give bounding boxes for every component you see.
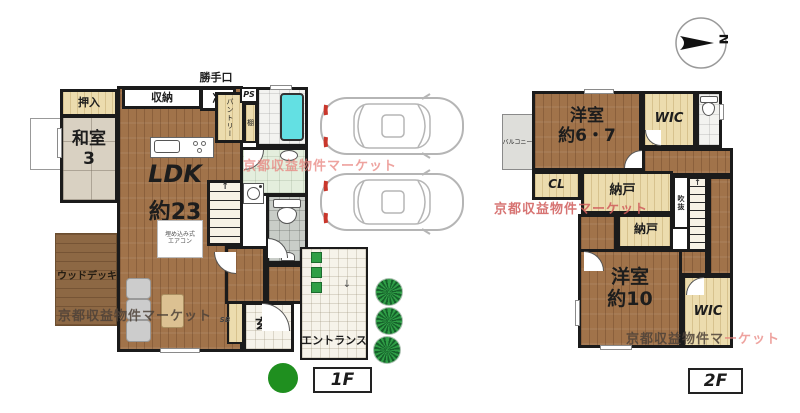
watermark-part: ーケット	[724, 332, 780, 347]
floor2-label: 2F	[704, 371, 727, 391]
floor-plan-canvas: 勝手口 LDK 約23 収納 冷 埋め込み式 エアコン 押入 和室 3 パントリ…	[0, 0, 800, 413]
car-icon	[318, 166, 466, 238]
shrub-icon	[376, 279, 402, 305]
window	[160, 348, 200, 353]
watermark: 京都収益物件マーケット	[243, 155, 397, 174]
watermark-part: 京都収益物件マ	[626, 332, 724, 347]
ldk-name: LDK	[148, 161, 202, 189]
wic-top-label: WIC	[646, 110, 692, 128]
wood-deck-label: ウッドデッキ	[56, 270, 118, 284]
window	[719, 104, 724, 120]
aircon-note-line2: エアコン	[168, 239, 192, 246]
cl-label: CL	[537, 176, 576, 194]
compass-icon: N	[674, 16, 728, 70]
floor2-label-box: 2F	[688, 368, 743, 394]
room-oshiire: 押入	[60, 89, 118, 117]
yoshitsu-10-size: 約10	[607, 289, 652, 311]
green-dot	[268, 363, 298, 393]
window	[57, 128, 62, 158]
kitchen-stove-icon	[193, 141, 209, 153]
floor1-label: 1F	[331, 370, 354, 390]
wic-bottom-label: WIC	[688, 303, 728, 321]
watermark: 京都収益物件マーケット	[58, 305, 212, 324]
washitsu-size: 3	[83, 150, 95, 170]
balcony-label: バルコニー	[502, 139, 533, 148]
washitsu-name: 和室	[72, 130, 106, 150]
hall-2f-b	[708, 176, 733, 276]
stairs-2f-arrow-icon: ↑	[691, 177, 704, 188]
toilet-2f	[700, 96, 718, 118]
yoshitsu-67-name: 洋室	[570, 107, 604, 127]
yoshitsu-67-label: 洋室 約6・7	[537, 101, 637, 153]
compass-north-label: N	[716, 34, 729, 45]
shoe-cabinet-note: SB	[218, 315, 232, 325]
porch-plant-shelf	[309, 251, 324, 295]
nando-b-label: 納戸	[624, 221, 668, 239]
entrance-label: エントランス	[297, 333, 371, 349]
toilet-1f	[273, 199, 301, 225]
yoshitsu-10-name: 洋室	[611, 267, 649, 289]
watermark: 京都収益物件マーケット	[626, 328, 780, 347]
aircon-box: 埋め込み式 エアコン	[157, 220, 203, 258]
fukinuke-label: 吹抜	[675, 178, 687, 227]
window	[270, 85, 292, 90]
pantry-label: パントリー	[218, 95, 242, 140]
stairs-1f-arrow-icon: ↑	[218, 181, 232, 193]
washing-machine	[243, 183, 264, 204]
shelf-label: 棚	[246, 105, 255, 141]
car-icon	[318, 91, 466, 161]
washitsu-label: 和室 3	[62, 128, 116, 172]
floor1-label-box: 1F	[313, 367, 372, 393]
yoshitsu-67-size: 約6・7	[558, 127, 616, 147]
room-shuno: 収納	[122, 87, 202, 109]
window	[575, 300, 580, 326]
window	[584, 89, 614, 94]
katteguchi-label: 勝手口	[193, 71, 239, 86]
kitchen-sink	[154, 140, 180, 153]
approach-arrow-icon: ↓	[340, 278, 354, 292]
watermark: 京都収益物件マーケット	[494, 198, 648, 217]
bathtub	[280, 93, 304, 141]
shrub-icon	[374, 337, 400, 363]
shrub-icon	[376, 308, 402, 334]
